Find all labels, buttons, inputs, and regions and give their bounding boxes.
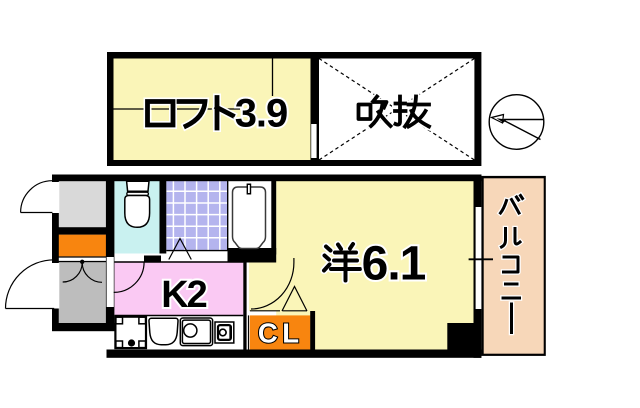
svg-text:CL: CL	[258, 318, 304, 349]
svg-text:3.9: 3.9	[235, 92, 288, 136]
svg-text:6.1: 6.1	[362, 238, 426, 291]
svg-text:K2: K2	[161, 274, 206, 316]
